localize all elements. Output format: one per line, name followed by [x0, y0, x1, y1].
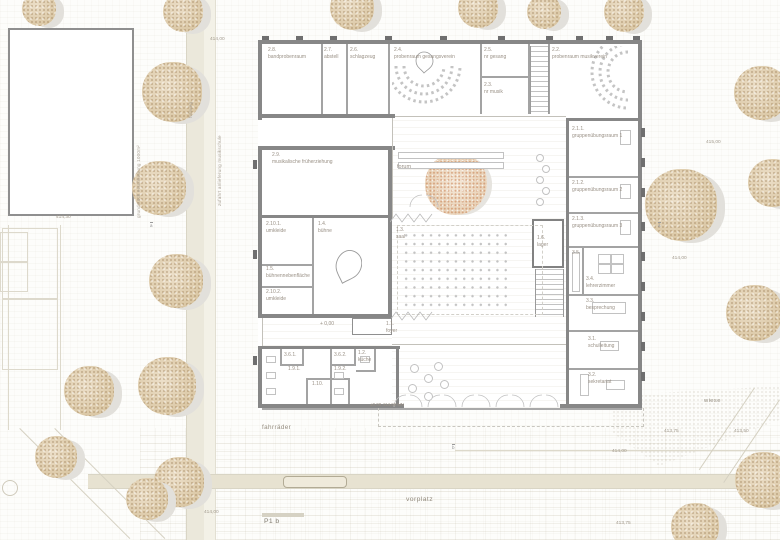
room-name: lehrerzimmer [586, 283, 615, 290]
forum-label: forum [397, 164, 411, 171]
elevation-value: 414,00 [210, 37, 225, 42]
room-label-umkleide-1: 2.10.1.umkleide [266, 221, 286, 234]
elevation-marker: 415,00 [706, 140, 721, 145]
elevation-marker: 413,50 [734, 429, 749, 434]
room-label-buehne: 1.4.bühne [318, 221, 332, 234]
elevation-value: 413,75 [616, 521, 631, 526]
section-marker-south: b [452, 444, 455, 451]
stool [542, 187, 550, 195]
tree [22, 0, 56, 26]
room-label-schlagzeug: 2.6.schlagzeug [350, 47, 375, 60]
footpath-text: fußweg [188, 102, 193, 118]
tree [142, 62, 202, 122]
desk [611, 254, 624, 264]
vorplatz-label: vorplatz [406, 496, 433, 503]
existing-building [8, 28, 134, 216]
window-stub [253, 356, 257, 365]
room-label-3-5: 3.5. [572, 250, 580, 257]
room-label-gruppenuebungsraum-1: 2.1.1.gruppenübungsraum 1 [572, 126, 622, 139]
window-stub [385, 36, 392, 40]
wc-fixture [266, 356, 276, 363]
wc-fixture [266, 388, 276, 395]
scale-bar [262, 513, 304, 517]
wc-fixture [334, 388, 344, 395]
room-label-lager: 1.6.lager [537, 235, 548, 248]
wc-fixture [266, 372, 276, 379]
saal-seating [402, 231, 512, 309]
room-name: saal [396, 234, 405, 241]
partition [482, 76, 528, 78]
glass-wall [392, 344, 566, 345]
window-stub [641, 158, 645, 167]
room-name: gruppenübungsraum 3 [572, 223, 622, 230]
partition [569, 212, 638, 214]
window-stub [633, 36, 640, 40]
window-stub [641, 312, 645, 321]
room-label-1-9-1: 1.9.1. [288, 366, 301, 373]
forum-text: forum [397, 164, 411, 170]
fahrraeder-label: fahrräder [262, 424, 291, 431]
room-name: lager [537, 242, 548, 249]
plan-ref-text: P1 b [264, 518, 280, 525]
window-stub [641, 342, 645, 351]
room-name: probenraum musikverein [552, 54, 607, 61]
window-stub [641, 372, 645, 381]
section-marker-left: a [150, 222, 153, 229]
glass-wall [395, 116, 566, 117]
elevation-marker: 414,30 [56, 215, 71, 220]
room-name: besprechung [586, 305, 615, 312]
room-id: 1.9.1. [288, 366, 301, 373]
wall-segment [262, 215, 388, 218]
window-stub [641, 282, 645, 291]
room-label-probenraum-gesangsverein: 2.4.probenraum gesangsverein [394, 47, 455, 60]
plot-annotation: grundstück erschließung 1000m² [136, 138, 141, 218]
window-stub [498, 36, 505, 40]
tree [458, 0, 498, 28]
folding-partition-zigzag [390, 311, 434, 321]
partition [569, 330, 638, 332]
room-id: 3.6.2. [334, 352, 347, 359]
window-stub [606, 36, 613, 40]
room-label-3-6-1: 3.6.1. [284, 352, 297, 359]
foyer-table [408, 384, 417, 393]
partition [348, 378, 350, 404]
foyer-table [440, 380, 449, 389]
room-name: gruppenübungsraum 1 [572, 133, 622, 140]
tree [604, 0, 644, 32]
wall-segment [258, 146, 395, 150]
room-label-gruppenuebungsraum-3: 2.1.3.gruppenübungsraum 3 [572, 216, 622, 229]
level-nn-text: ±0,00 414,00 NN [370, 402, 404, 407]
window-stub [253, 250, 257, 259]
room-name: nr musik [484, 89, 503, 96]
room-label-saal: 1.3.saal [396, 227, 405, 240]
section-letter: a [150, 223, 153, 228]
room-name: bühnennebenfläche [266, 273, 310, 280]
tree [149, 254, 203, 308]
wiese-text: wiese [704, 398, 721, 404]
room-name: umkleide [266, 296, 286, 303]
delivery-annotation: zufahrt anlieferung musikschule [217, 122, 222, 206]
stair-north [530, 46, 549, 114]
room-name: bandprobenraum [268, 54, 306, 61]
window-stub [440, 36, 447, 40]
elevation-value: 414,00 [672, 256, 687, 261]
forum-bench [398, 152, 504, 159]
tree [330, 0, 374, 30]
glass-wall [262, 318, 263, 346]
partition [569, 246, 638, 248]
partition [356, 370, 376, 372]
partition [374, 349, 376, 372]
canopy-dashed-line [378, 408, 644, 427]
room-id: 1.3. [396, 227, 405, 234]
tree [126, 478, 168, 520]
foyer-table [424, 374, 433, 383]
partition [306, 378, 308, 404]
footpath-label: fußweg [188, 58, 193, 118]
partition [569, 368, 638, 370]
room-label-buehnennebenflaeche: 1.5.bühnennebenfläche [266, 266, 310, 279]
room-label-bandprobenraum: 2.8.bandprobenraum [268, 47, 306, 60]
room-id: 3.6.1. [284, 352, 297, 359]
fahrraeder-text: fahrräder [262, 424, 291, 431]
room-label-nr-gesang: 2.5.nr gesang [484, 47, 506, 60]
stool [536, 176, 544, 184]
foyer-table [424, 392, 433, 401]
section-letter: a [658, 223, 661, 228]
tree [138, 357, 196, 415]
tree [671, 503, 719, 540]
wall-segment [566, 118, 569, 408]
elevation-value: 414,00 [204, 510, 219, 515]
window-stub [253, 160, 257, 169]
tree [527, 0, 561, 29]
tree [726, 285, 780, 341]
window-stub [641, 222, 645, 231]
shelf [572, 252, 580, 292]
partition [582, 248, 584, 294]
elevation-marker: 414,00 [672, 256, 687, 261]
wall-segment [258, 114, 395, 118]
room-label-1-9-2: 1.9.2. [334, 366, 347, 373]
elevation-value: 413,75 [664, 429, 679, 434]
section-marker-right: a [658, 222, 661, 229]
room-name: schlagzeug [350, 54, 375, 61]
room-label-schulleitung: 3.1.schulleitung [588, 336, 614, 349]
desk [598, 254, 611, 264]
courtyard-door-arcs [408, 194, 440, 208]
glass-wall [392, 118, 393, 218]
grand-piano [332, 248, 362, 290]
partition [321, 44, 323, 114]
desk [598, 264, 611, 274]
room-name: bühne [318, 228, 332, 235]
bench [283, 476, 347, 488]
entrance-pad [0, 262, 28, 292]
elevation-value: 414,30 [56, 215, 71, 220]
plan-reference-label: P1 b [264, 518, 280, 525]
room-name: küche [358, 357, 371, 364]
elevation-value: 413,50 [734, 429, 749, 434]
window-stub [576, 36, 583, 40]
room-label-musikalische-frueherziehung: 2.9.musikalische früherziehung [272, 152, 333, 165]
room-name: sekretariat [588, 379, 611, 386]
room-label-nr-musik: 2.3.nr musik [484, 82, 503, 95]
wall-segment [258, 349, 262, 408]
room-id: 1.9.2. [334, 366, 347, 373]
window-stub [330, 36, 337, 40]
desk [611, 264, 624, 274]
tree [64, 366, 114, 416]
partition [312, 218, 314, 314]
room-name: foyer [386, 328, 397, 335]
level-nn-label: ±0,00 414,00 NN [370, 402, 404, 408]
window-stub [296, 36, 303, 40]
wall-segment [258, 150, 262, 318]
window-stub [546, 36, 553, 40]
stool [542, 165, 550, 173]
room-label-3-6-2: 3.6.2. [334, 352, 347, 359]
wall-segment [258, 44, 262, 120]
room-id: 3.5. [572, 250, 580, 257]
elevation-marker: 414,00 [612, 449, 627, 454]
level-zero-label: + 0,00 [320, 321, 334, 328]
entrance-pad [0, 232, 28, 262]
window-stub [262, 36, 269, 40]
elevation-value: 414,00 [612, 449, 627, 454]
folding-partition-zigzag [390, 213, 434, 223]
elevation-marker: 414,00 [204, 510, 219, 515]
foyer-table [434, 362, 443, 371]
vorplatz-text: vorplatz [406, 496, 433, 503]
partition [388, 44, 390, 114]
entrance-door-arcs [392, 394, 564, 408]
room-label-sekretariat: 3.2.sekretariat [588, 372, 611, 385]
room-label-abstell: 2.7.abstell [324, 47, 338, 60]
tree [748, 159, 780, 207]
stool [536, 154, 544, 162]
foyer-table [410, 364, 419, 373]
partition [480, 44, 482, 114]
window-stub [641, 188, 645, 197]
room-name: musikalische früherziehung [272, 159, 333, 166]
room-name: abstell [324, 54, 338, 61]
partition [569, 294, 638, 296]
room-label-gruppenuebungsraum-2: 2.1.2.gruppenübungsraum 2 [572, 180, 622, 193]
room-label-besprechung: 3.3.besprechung [586, 298, 615, 311]
forum-bench [398, 162, 504, 169]
tree-pit [2, 480, 18, 496]
elevation-value: 415,00 [706, 140, 721, 145]
room-label-lehrerzimmer: 3.4.lehrerzimmer [586, 276, 615, 289]
room-label-1-10: 1.10. [312, 381, 323, 388]
level-zero-text: + 0,00 [320, 321, 334, 327]
tree [35, 436, 77, 478]
wc-fixture [334, 372, 344, 379]
partition [262, 286, 312, 288]
plot-annotation-text: grundstück erschließung 1000m² [136, 145, 141, 218]
room-label-foyer: 1.1.foyer [386, 321, 397, 334]
footpath-shoulder [204, 0, 216, 540]
section-letter: b [452, 445, 455, 450]
window-stub [641, 252, 645, 261]
room-id: 1.10. [312, 381, 323, 388]
room-name: umkleide [266, 228, 286, 235]
curb-line [60, 225, 61, 430]
elevation-marker: 414,00 [210, 37, 225, 42]
room-name: schulleitung [588, 343, 614, 350]
site-plan-canvas: 2.8.bandprobenraum 2.7.abstell 2.6.schla… [0, 0, 780, 540]
tree [645, 169, 717, 241]
wiese-label: wiese [704, 398, 721, 404]
room-label-kueche: 1.2.küche [358, 350, 371, 363]
delivery-annotation-text: zufahrt anlieferung musikschule [217, 135, 222, 206]
elevation-marker: 413,75 [616, 521, 631, 526]
parking-lot [2, 298, 58, 370]
elevation-marker: 413,75 [664, 429, 679, 434]
partition [346, 44, 348, 114]
room-label-probenraum-musikverein: 2.2.probenraum musikverein [552, 47, 607, 60]
partition [330, 349, 332, 404]
stool [536, 198, 544, 206]
room-name: nr gesang [484, 54, 506, 61]
tree [734, 66, 780, 120]
room-label-umkleide-2: 2.10.2.umkleide [266, 289, 286, 302]
window-stub [641, 128, 645, 137]
room-name: gruppenübungsraum 2 [572, 187, 622, 194]
wall-segment [566, 118, 642, 121]
room-name: probenraum gesangsverein [394, 54, 455, 61]
partition [569, 176, 638, 178]
